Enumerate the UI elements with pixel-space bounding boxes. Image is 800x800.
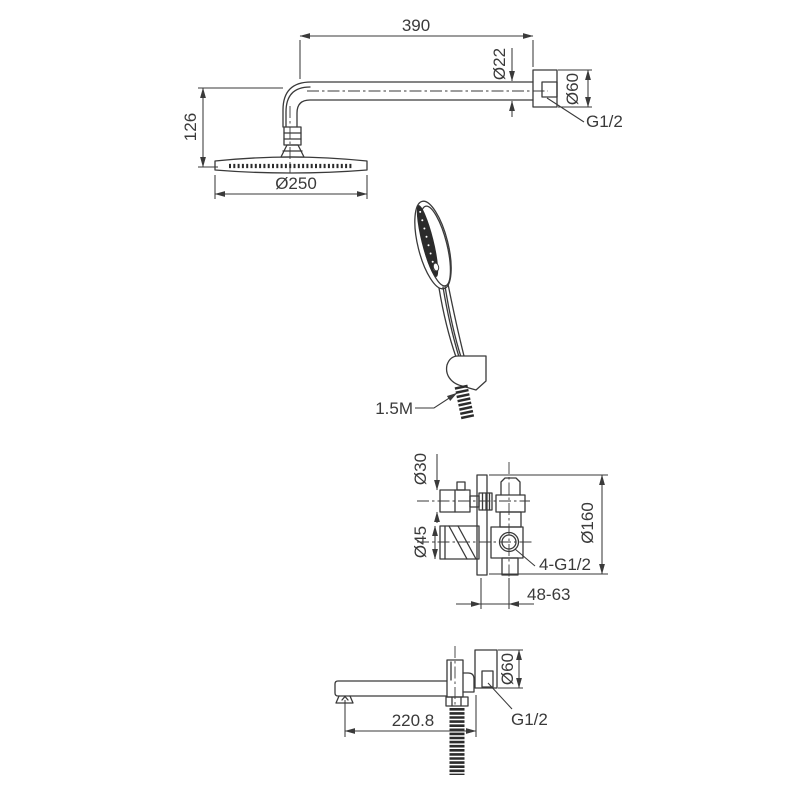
- mixer-valve-figure: Ø30 Ø45 Ø160 4-G1/2 48-63: [411, 453, 608, 609]
- dim-22-label: Ø22: [490, 48, 509, 80]
- shower-system-drawing: 390 Ø22 Ø60 G1/2 126 Ø250: [0, 0, 800, 800]
- dim-60-label: Ø60: [563, 73, 582, 105]
- g12-bottom-label: G1/2: [511, 710, 548, 729]
- dim-160-label: Ø160: [578, 502, 597, 544]
- spout-tube: [335, 681, 447, 696]
- dim-126-label: 126: [181, 113, 200, 141]
- flange-pipe-end-bottom: [482, 671, 493, 687]
- dim-4863-label: 48-63: [527, 585, 570, 604]
- handset-handle: [439, 284, 464, 357]
- spout-nut: [446, 697, 468, 706]
- dim-30-label: Ø30: [411, 453, 430, 485]
- wall-flange-top: [533, 70, 557, 107]
- valve-plate: [477, 475, 487, 575]
- hose-length-label: 1.5M: [375, 399, 413, 418]
- valve-stub: [502, 558, 518, 575]
- overhead-shower-figure: 390 Ø22 Ø60 G1/2 126 Ø250: [181, 16, 623, 199]
- dim-45-label: Ø45: [411, 526, 430, 558]
- shower-arm-outer: [283, 82, 533, 127]
- diverter-stem: [457, 482, 465, 490]
- dim-250-label: Ø250: [275, 174, 317, 193]
- arm-nut-facets: [284, 133, 301, 139]
- valve-top-pipe: [501, 478, 520, 495]
- dim-126-ext: [198, 88, 283, 167]
- dim-390-label: 390: [402, 16, 430, 35]
- shower-arm-inner: [297, 100, 533, 127]
- hand-shower-hose: [461, 386, 468, 419]
- ports-label: 4-G1/2: [539, 555, 591, 574]
- dim-60b-label: Ø60: [498, 653, 517, 685]
- valve-shoulder: [496, 495, 525, 512]
- hand-shower-figure: 1.5M: [375, 198, 486, 419]
- tub-spout-figure: Ø60 G1/2 220.8: [335, 646, 548, 775]
- diverter-knurl-ribs: [483, 493, 490, 510]
- hose-leader: [415, 393, 457, 408]
- g12-bottom-leader: [488, 683, 512, 709]
- flange-pipe-end: [542, 82, 557, 97]
- arm-nut: [284, 127, 301, 145]
- g12-top-label: G1/2: [586, 112, 623, 131]
- mixer-handle-lines: [445, 526, 476, 559]
- spout-connector: [463, 673, 474, 692]
- wall-flange-bottom: [475, 650, 497, 688]
- dim-2208-label: 220.8: [392, 711, 435, 730]
- spout-nut-facets: [452, 697, 461, 706]
- valve-neck: [500, 512, 521, 527]
- head-cone: [281, 145, 304, 157]
- technical-drawing-canvas: 390 Ø22 Ø60 G1/2 126 Ø250: [0, 0, 800, 800]
